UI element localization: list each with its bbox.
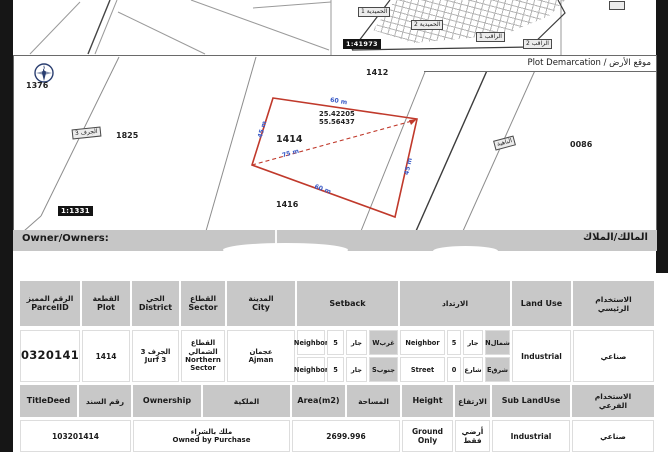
header-plot: القطعة Plot bbox=[82, 281, 130, 326]
parcel-label-1825: 1825 bbox=[116, 131, 138, 140]
header-city: المدينة City bbox=[227, 281, 295, 326]
header-city-ar: المدينة bbox=[248, 294, 273, 303]
parcel-label-1416: 1416 bbox=[276, 200, 298, 209]
header-parcel-id-en: ParcelID bbox=[31, 303, 69, 313]
overview-scale-box: 1:41973 bbox=[343, 39, 381, 49]
value-height-ar: أرضي فقط bbox=[455, 420, 490, 452]
irtidad-east-type: Street bbox=[400, 357, 445, 382]
value-land-use-en: Industrial bbox=[512, 330, 571, 382]
value-sector-en: Northern Sector bbox=[182, 356, 224, 373]
header-plot-ar: القطعة bbox=[93, 294, 120, 303]
parcel-label-0086: 0086 bbox=[570, 140, 592, 149]
irtidad-north-type: Neighbor bbox=[400, 330, 445, 355]
photo-edge-left bbox=[0, 0, 13, 452]
setback-west-direction: غربW bbox=[369, 330, 398, 355]
owner-bar: Owner/Owners: المالك/الملاك bbox=[13, 230, 657, 251]
value-district-ar: الجرف 3 bbox=[141, 348, 171, 356]
setback-west-type-ar: جار bbox=[346, 330, 367, 355]
header-title-deed-en-label: TitleDeed bbox=[27, 396, 70, 406]
header-setback-en-label: Setback bbox=[329, 299, 365, 309]
header-parcel-id: الرقم المميز ParcelID bbox=[20, 281, 80, 326]
header-title-deed-ar: رقم السند bbox=[79, 385, 131, 417]
plot-longitude: 55.56437 bbox=[319, 118, 355, 126]
header-sector-ar: القطاع bbox=[190, 294, 216, 303]
demarcation-scale-box: 1:1331 bbox=[58, 206, 93, 216]
header-height-ar-label: الارتفاع bbox=[458, 397, 487, 406]
value-height-en: Ground Only bbox=[402, 420, 453, 452]
header-setback-en: Setback bbox=[297, 281, 398, 326]
value-ownership-en: Owned by Purchase bbox=[173, 436, 251, 444]
header-height-ar: الارتفاع bbox=[455, 385, 490, 417]
header-ownership-en: Ownership bbox=[133, 385, 201, 417]
header-parcel-id-ar: الرقم المميز bbox=[27, 294, 74, 303]
value-sector: القطاع الشمالي Northern Sector bbox=[181, 330, 225, 382]
value-city-en: Ajman bbox=[249, 356, 274, 364]
header-ownership-ar: الملكية bbox=[203, 385, 290, 417]
header-area-en: Area(m2) bbox=[292, 385, 345, 417]
irtidad-grid: Neighbor 5 جار شمالN Street 0 شارع شرقE bbox=[400, 330, 510, 382]
value-city: عجمان Ajman bbox=[227, 330, 295, 382]
header-area-en-label: Area(m2) bbox=[297, 396, 339, 406]
table2-data-row: 103201414 ملك بالشراء Owned by Purchase … bbox=[20, 420, 654, 452]
area-label-raqib1: الراقب 1 bbox=[476, 32, 505, 42]
setback-south-type: Neighbor bbox=[297, 357, 325, 382]
plot-latitude: 25.42205 bbox=[319, 110, 355, 118]
setback-south-value: 5 bbox=[327, 357, 344, 382]
header-title-deed-ar-label: رقم السند bbox=[86, 397, 124, 406]
header-district-en: District bbox=[139, 303, 172, 313]
value-sub-landuse-ar: صناعي bbox=[572, 420, 654, 452]
value-district-en: Jurf 3 bbox=[145, 356, 166, 364]
value-ownership-ar: ملك بالشراء bbox=[191, 428, 233, 436]
setback-south-type-ar: جار bbox=[346, 357, 367, 382]
value-title-deed: 103201414 bbox=[20, 420, 131, 452]
header-plot-en: Plot bbox=[97, 303, 115, 313]
header-main-use-ar: الاستخدام الرئيسي bbox=[573, 281, 654, 326]
value-sub-landuse-en: Industrial bbox=[492, 420, 570, 452]
header-height-en: Height bbox=[402, 385, 453, 417]
header-sub-landuse-ar: الاستخدام الفرعي bbox=[572, 385, 654, 417]
irtidad-east-direction: شرقE bbox=[485, 357, 510, 382]
owner-label-ar: المالك/الملاك bbox=[583, 232, 648, 243]
header-setback-ar-label: الارتداد bbox=[442, 299, 468, 308]
header-land-use: Land Use bbox=[512, 281, 571, 326]
header-sub-landuse-en: Sub LandUse bbox=[492, 385, 570, 417]
parcel-label-1414: 1414 bbox=[276, 134, 302, 145]
header-ownership-en-label: Ownership bbox=[143, 396, 191, 406]
table2-header-row: TitleDeed رقم السند Ownership الملكية Ar… bbox=[20, 385, 654, 417]
svg-text:N: N bbox=[41, 65, 46, 73]
header-area-ar: المساحة bbox=[347, 385, 400, 417]
setback-west-type: Neighbor bbox=[297, 330, 325, 355]
demarcation-title: موقع الأرض / Plot Demarcation bbox=[424, 56, 656, 72]
header-district-ar: الحي bbox=[146, 294, 164, 303]
value-city-ar: عجمان bbox=[249, 348, 272, 356]
value-ownership: ملك بالشراء Owned by Purchase bbox=[133, 420, 290, 452]
header-district: الحي District bbox=[132, 281, 179, 326]
header-setback-ar: الارتداد bbox=[400, 281, 510, 326]
plot-demarcation-document: الحميدية 1 الحميدية 2 الراقب 1 الراقب 2 … bbox=[0, 0, 668, 452]
setback-west-value: 5 bbox=[327, 330, 344, 355]
irtidad-east-value: 0 bbox=[447, 357, 461, 382]
value-parcel-id: 103201414 bbox=[20, 330, 80, 382]
demarcation-map: موقع الأرض / Plot Demarcation N 1376 182… bbox=[13, 55, 657, 232]
irtidad-north-value: 5 bbox=[447, 330, 461, 355]
header-ownership-ar-label: الملكية bbox=[234, 397, 259, 406]
owner-label-en: Owner/Owners: bbox=[22, 233, 109, 244]
header-area-ar-label: المساحة bbox=[358, 397, 389, 406]
area-label-hamidiya1: الحميدية 1 bbox=[358, 7, 390, 17]
table1-header-row: الرقم المميز ParcelID القطعة Plot الحي D… bbox=[20, 281, 654, 326]
header-city-en: City bbox=[252, 303, 270, 313]
plot-coordinates: 25.42205 55.56437 bbox=[319, 110, 355, 127]
area-label-raqib2: الراقب 2 bbox=[523, 39, 552, 49]
value-district: الجرف 3 Jurf 3 bbox=[132, 330, 179, 382]
header-sub-landuse-en-label: Sub LandUse bbox=[502, 396, 561, 406]
header-title-deed-en: TitleDeed bbox=[20, 385, 77, 417]
header-sector: القطاع Sector bbox=[181, 281, 225, 326]
header-sub-landuse-ar-label: الاستخدام الفرعي bbox=[582, 392, 644, 410]
overview-maps: الحميدية 1 الحميدية 2 الراقب 1 الراقب 2 … bbox=[13, 0, 657, 55]
header-land-use-label: Land Use bbox=[521, 299, 562, 309]
photo-edge-right bbox=[656, 0, 668, 273]
redaction-mark bbox=[223, 243, 348, 257]
redaction-mark bbox=[433, 246, 498, 256]
irtidad-north-direction: شمالN bbox=[485, 330, 510, 355]
value-area: 2699.996 bbox=[292, 420, 400, 452]
header-main-use-ar-label: الاستخدام الرئيسي bbox=[579, 295, 648, 313]
header-height-en-label: Height bbox=[412, 396, 442, 406]
header-sector-en: Sector bbox=[188, 303, 217, 313]
irtidad-north-type-ar: جار bbox=[463, 330, 483, 355]
value-sector-ar: القطاع الشمالي bbox=[182, 339, 224, 356]
setback-grid: Neighbor 5 جار غربW Neighbor 5 جار جنوبS bbox=[297, 330, 398, 382]
parcel-map-canvas bbox=[14, 56, 656, 231]
area-label-hamidiya2: الحميدية 2 bbox=[411, 20, 443, 30]
value-land-use-ar: صناعي bbox=[573, 330, 654, 382]
value-plot: 1414 bbox=[82, 330, 130, 382]
parcel-label-1376: 1376 bbox=[26, 81, 48, 90]
overview-map-lines bbox=[13, 0, 657, 55]
table1-data-row: 103201414 1414 الجرف 3 Jurf 3 القطاع الش… bbox=[20, 330, 654, 382]
setback-south-direction: جنوبS bbox=[369, 357, 398, 382]
parcel-label-1412: 1412 bbox=[366, 68, 388, 77]
parcel-tables: الرقم المميز ParcelID القطعة Plot الحي D… bbox=[20, 281, 654, 452]
irtidad-east-type-ar: شارع bbox=[463, 357, 483, 382]
area-label-cropped bbox=[609, 1, 625, 10]
